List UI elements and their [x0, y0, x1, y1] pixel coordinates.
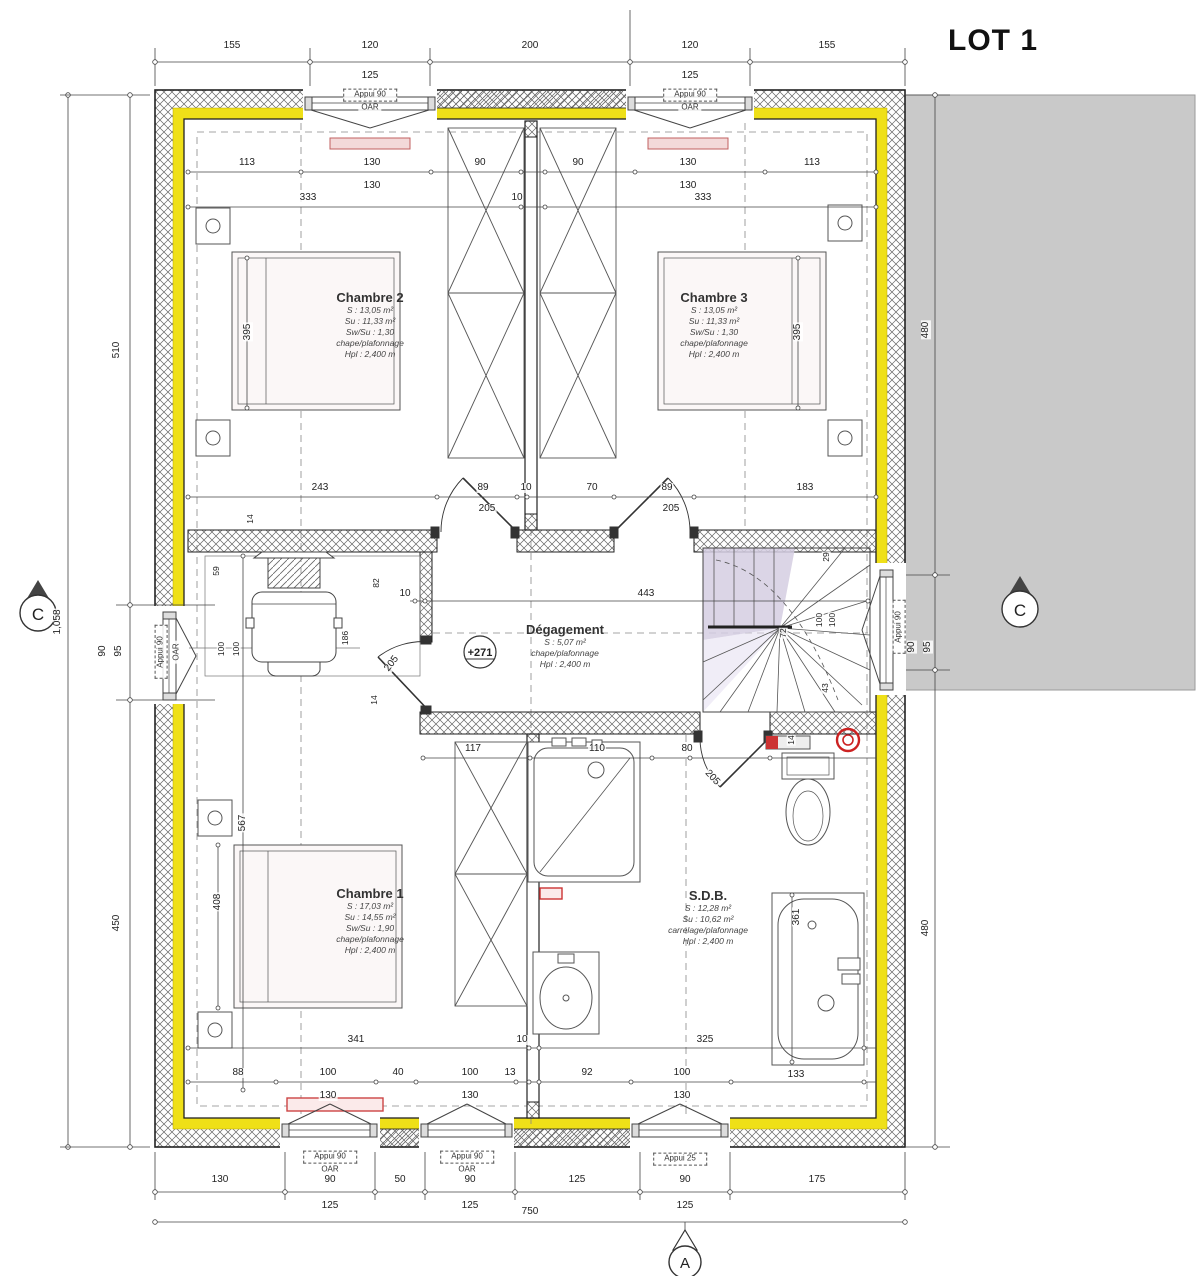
room-finish: chape/plafonnage: [680, 338, 748, 349]
section-label-right: C: [1014, 601, 1026, 620]
room-area-useful: Su : 14,55 m²: [336, 912, 404, 923]
room-area: S : 5,07 m²: [526, 637, 604, 648]
room-label-chambre1: Chambre 1 S : 17,03 m² Su : 14,55 m² Sw/…: [336, 886, 404, 956]
room-area-useful: Su : 11,33 m²: [336, 316, 404, 327]
floor-plan-canvas: +271 C C A Chambre 2 S : 13,05 m² Su : 1…: [0, 0, 1200, 1276]
section-label-left: C: [32, 605, 44, 624]
room-finish: carrelage/plafonnage: [668, 925, 748, 936]
level-marker: +271: [464, 636, 496, 668]
staircase: [703, 548, 870, 712]
room-area: S : 17,03 m²: [336, 901, 404, 912]
room-area-useful: Su : 11,33 m²: [680, 316, 748, 327]
room-area-useful: Su : 10,62 m²: [668, 914, 748, 925]
room-finish: chape/plafonnage: [526, 648, 604, 659]
section-label-bottom: A: [680, 1255, 690, 1272]
lot-title: LOT 1: [948, 24, 1038, 58]
neighbour-lot-area: [905, 95, 1195, 690]
room-name: Dégagement: [526, 622, 604, 637]
room-name: Chambre 1: [336, 886, 404, 901]
section-marker-a-bottom: A: [669, 1230, 701, 1276]
room-ceiling-height: Hpl : 2,400 m: [336, 349, 404, 360]
room-ratio: Sw/Su : 1,30: [680, 327, 748, 338]
level-marker-value: +271: [468, 647, 493, 659]
room-name: Chambre 2: [336, 290, 404, 305]
room-finish: chape/plafonnage: [336, 934, 404, 945]
room-area: S : 13,05 m²: [680, 305, 748, 316]
room-ceiling-height: Hpl : 2,400 m: [680, 349, 748, 360]
room-ratio: Sw/Su : 1,30: [336, 327, 404, 338]
room-ceiling-height: Hpl : 2,400 m: [336, 945, 404, 956]
room-finish: chape/plafonnage: [336, 338, 404, 349]
room-label-chambre3: Chambre 3 S : 13,05 m² Su : 11,33 m² Sw/…: [680, 290, 748, 360]
room-name: Chambre 3: [680, 290, 748, 305]
room-label-chambre2: Chambre 2 S : 13,05 m² Su : 11,33 m² Sw/…: [336, 290, 404, 360]
room-ceiling-height: Hpl : 2,400 m: [668, 936, 748, 947]
water-heater: [246, 552, 342, 676]
room-label-sdb: S.D.B. S : 12,28 m² Su : 10,62 m² carrel…: [668, 888, 748, 947]
room-ratio: Sw/Su : 1,90: [336, 923, 404, 934]
room-label-degagement: Dégagement S : 5,07 m² chape/plafonnage …: [526, 622, 604, 670]
section-marker-c-left: C: [20, 580, 56, 631]
room-area: S : 13,05 m²: [336, 305, 404, 316]
room-name: S.D.B.: [668, 888, 748, 903]
room-ceiling-height: Hpl : 2,400 m: [526, 659, 604, 670]
room-area: S : 12,28 m²: [668, 903, 748, 914]
